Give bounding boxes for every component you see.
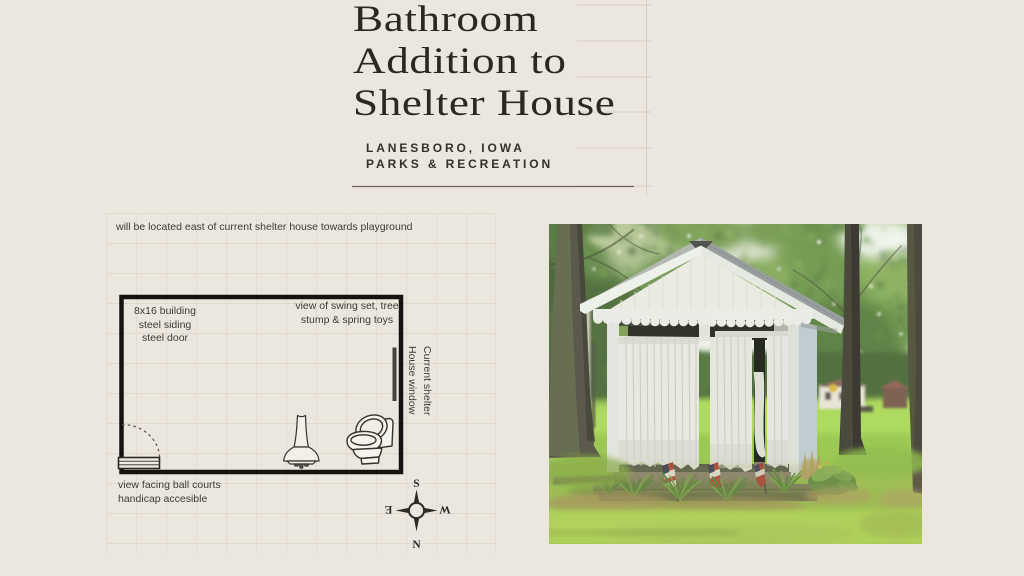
svg-text:E: E (384, 503, 392, 515)
svg-text:W: W (439, 503, 451, 515)
svg-text:N: N (412, 539, 421, 551)
svg-text:S: S (413, 478, 419, 490)
